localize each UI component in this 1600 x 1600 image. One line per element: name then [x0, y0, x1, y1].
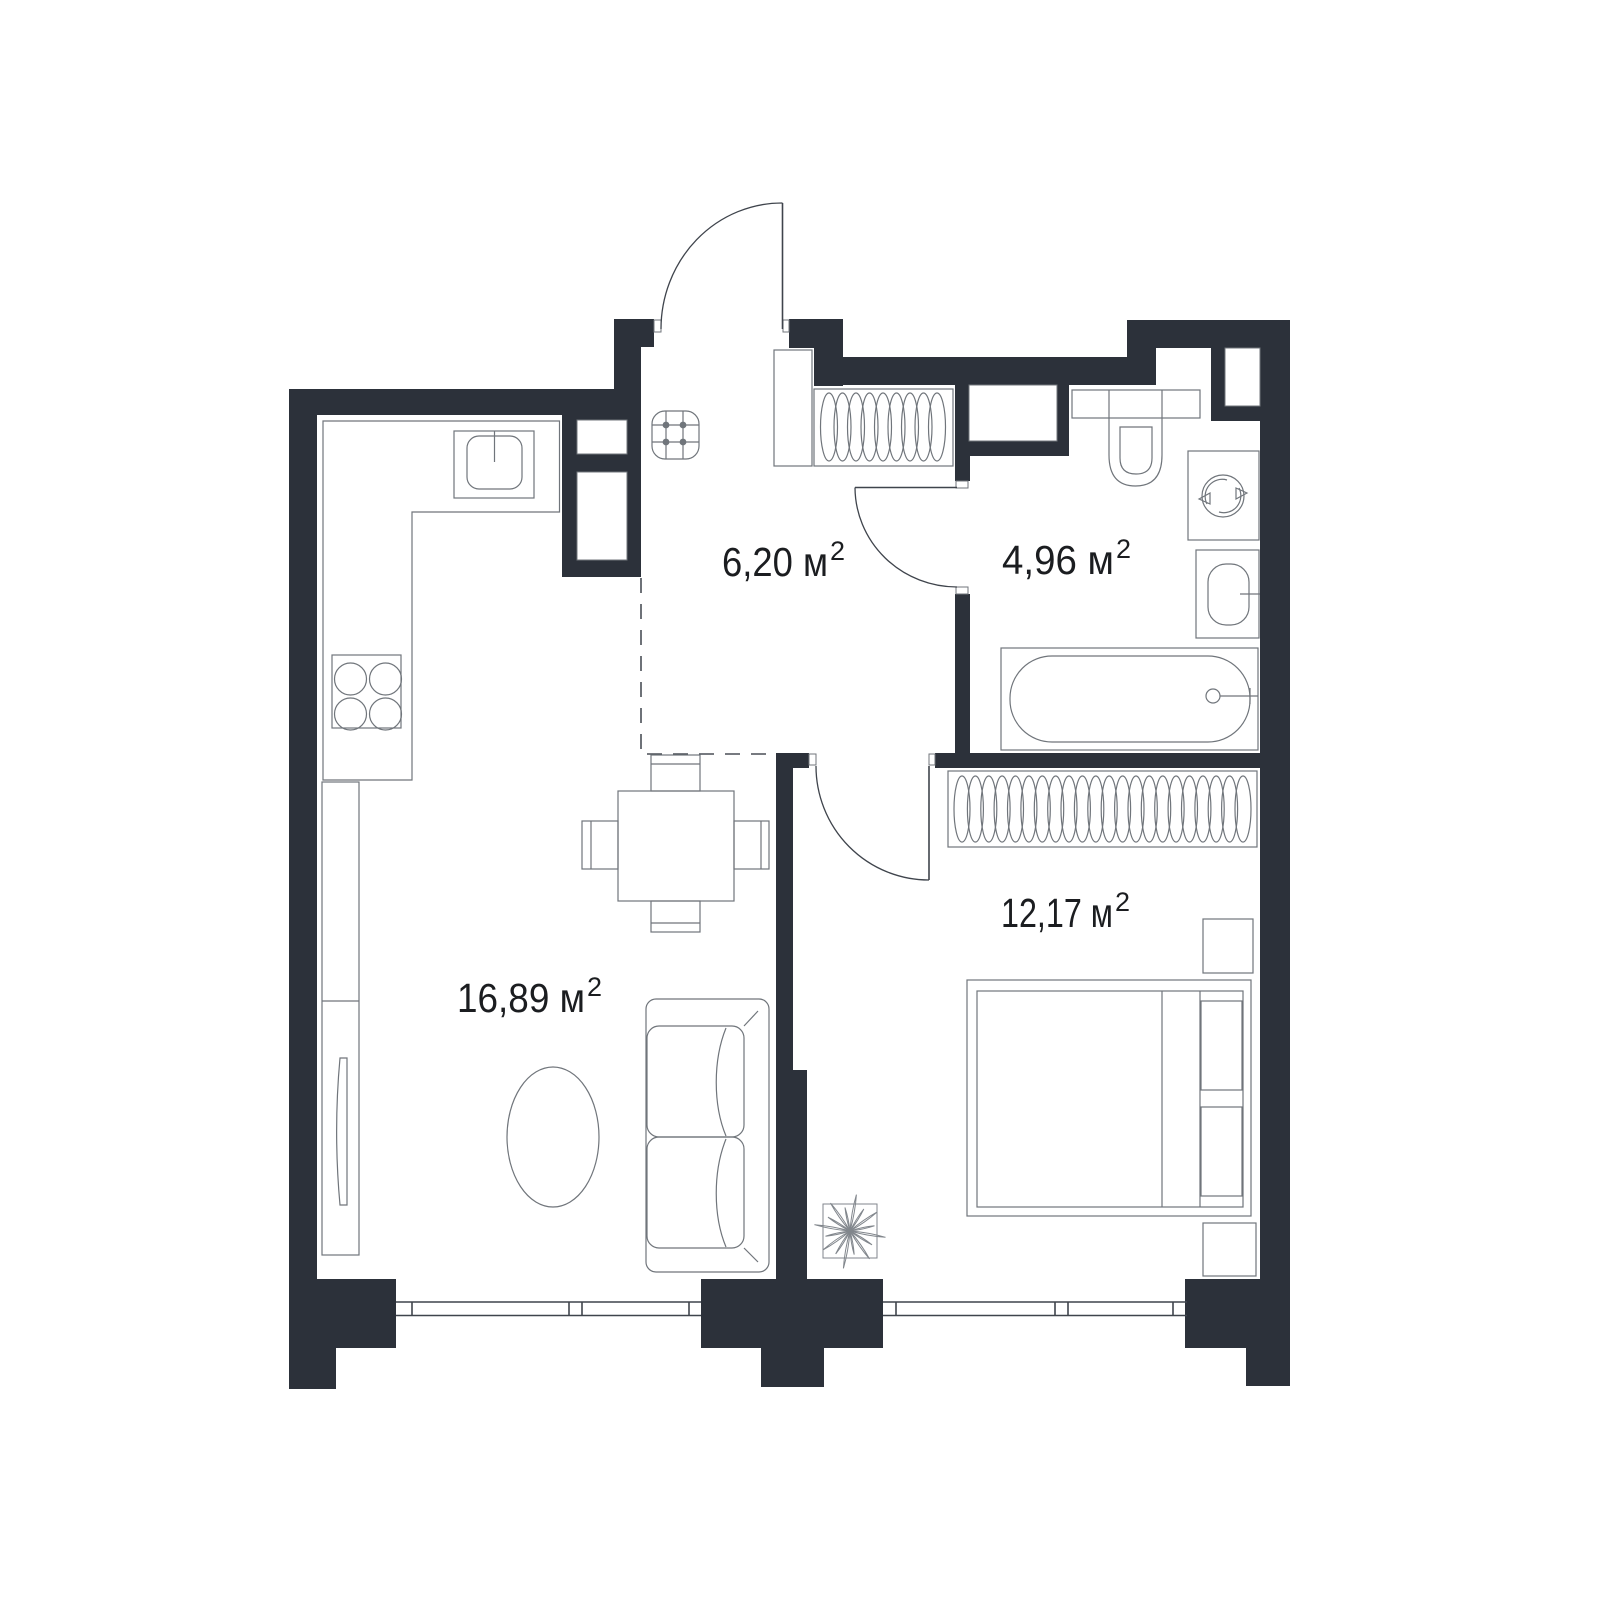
svg-text:12,17 м: 12,17 м	[1001, 890, 1113, 936]
svg-text:4,96 м: 4,96 м	[1002, 537, 1114, 583]
svg-text:2: 2	[587, 972, 602, 1002]
svg-text:2: 2	[1115, 887, 1130, 917]
svg-text:2: 2	[1116, 534, 1131, 564]
svg-text:6,20 м: 6,20 м	[722, 539, 828, 585]
svg-text:16,89 м: 16,89 м	[457, 975, 585, 1021]
svg-text:2: 2	[830, 536, 845, 566]
